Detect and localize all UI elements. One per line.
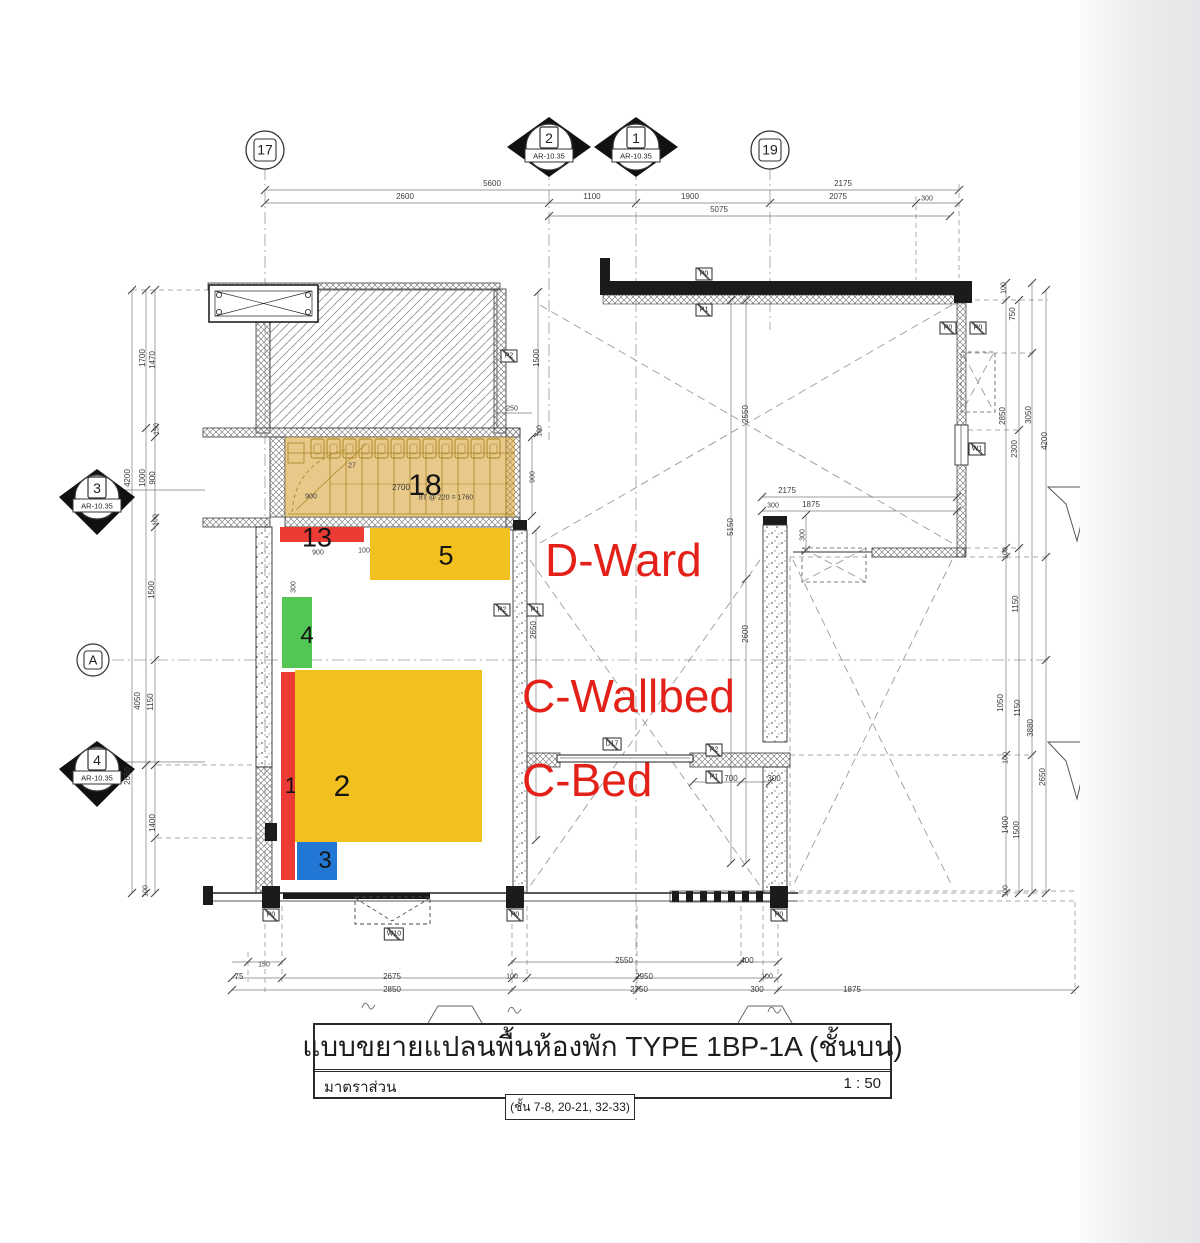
dimension-label: 1875 xyxy=(802,501,820,509)
section-marker-label: 2 xyxy=(545,130,553,146)
furniture-number-label: 3 xyxy=(318,849,331,873)
dimension-label: 900 xyxy=(530,471,537,483)
element-tag-P2: P2 xyxy=(706,744,723,757)
dimension-label: 100 xyxy=(1003,547,1010,559)
dimension-label: 100 xyxy=(143,885,150,897)
floor-plan-drawing: 17 19 A 2 AR-10.35 1 AR-10.35 xyxy=(0,0,1200,1243)
grid-bubble-label: A xyxy=(89,653,98,668)
dimension-label: 8T @ 220 = 1760 xyxy=(419,495,473,502)
dimension-label: 1000 xyxy=(139,469,147,487)
dimension-label: 700 xyxy=(724,775,737,783)
element-tag-D17: D17 xyxy=(603,738,622,751)
fold-marks xyxy=(362,1003,792,1023)
dimension-label: 1700 xyxy=(139,349,147,367)
floors-note: (ชั้น 7-8, 20-21, 32-33) xyxy=(505,1094,635,1120)
furniture-number-label: 5 xyxy=(438,543,453,570)
dimension-label: 150 xyxy=(258,962,270,969)
dimension-label: 100 xyxy=(1003,885,1010,897)
dimension-label: 1500 xyxy=(533,349,541,367)
dimension-label: 2075 xyxy=(829,193,847,201)
annotation-c-bed: C-Bed xyxy=(522,756,652,804)
furniture-overlay-18 xyxy=(285,437,515,517)
dimension-label: 150 xyxy=(154,423,161,435)
grid-bubble-17: 17 xyxy=(246,131,284,169)
furniture-number-label: 2 xyxy=(334,772,351,802)
dimension-label: 2850 xyxy=(999,407,1007,425)
dimension-label: 1500 xyxy=(1013,821,1021,839)
dimension-label: 100 xyxy=(358,548,370,555)
dimension-label: 300 xyxy=(767,775,780,783)
dimension-label: 1400 xyxy=(149,814,157,832)
dimension-label: 100 xyxy=(761,974,773,981)
dimension-label: 1100 xyxy=(583,193,600,201)
dimension-label: 2600 xyxy=(396,193,414,201)
dimension-label: 4050 xyxy=(134,692,142,710)
element-tag-P0: P0 xyxy=(696,268,713,281)
dimension-label: 1875 xyxy=(843,986,861,994)
dimension-label: 2600 xyxy=(742,625,750,643)
section-marker-label: 3 xyxy=(93,480,101,496)
dimension-label: 300 xyxy=(800,529,807,541)
element-tag-P2: P2 xyxy=(501,350,518,363)
dimension-label: 3050 xyxy=(1025,406,1033,424)
element-tag-P0: P0 xyxy=(940,322,957,335)
drawing-title: แบบขยายแปลนพื้นห้องพัก TYPE 1BP-1A (ชั้น… xyxy=(315,1025,890,1070)
dimension-label: 100 xyxy=(1001,282,1008,294)
dimension-label: 3880 xyxy=(1027,719,1035,737)
dimension-label: 750 xyxy=(1009,307,1017,320)
dimension-label: 2175 xyxy=(778,487,796,495)
dimension-label: 100 xyxy=(153,514,160,526)
dimension-label: 4200 xyxy=(1041,432,1049,450)
dimension-label: 27 xyxy=(348,463,356,470)
dimension-label: 1470 xyxy=(149,351,157,369)
furniture-number-label: 4 xyxy=(300,624,313,648)
furniture-overlay-2 xyxy=(295,670,482,842)
section-ref-label: AR-10.35 xyxy=(81,502,113,511)
dimension-label: 2700 xyxy=(392,484,410,492)
element-tag-P0: P0 xyxy=(507,909,524,922)
section-ref-label: AR-10.35 xyxy=(533,152,565,161)
element-tag-W1: W1 xyxy=(969,443,986,456)
floor-plan-page: 17 19 A 2 AR-10.35 1 AR-10.35 xyxy=(0,0,1200,1243)
dimension-label: 5150 xyxy=(727,518,735,536)
dimension-label: 300 xyxy=(767,503,779,510)
dimension-label: 2850 xyxy=(383,986,401,994)
grid-bubble-19: 19 xyxy=(751,131,789,169)
dimension-label: 1150 xyxy=(147,693,155,710)
dimension-label: 2650 xyxy=(1039,768,1047,786)
dimension-label: 1050 xyxy=(997,694,1005,712)
annotation-c-wallbed: C-Wallbed xyxy=(522,672,735,720)
dimension-label: 250 xyxy=(506,406,518,413)
section-ref-label: AR-10.35 xyxy=(620,152,652,161)
element-tag-P0: P0 xyxy=(263,909,280,922)
dimension-label: 300 xyxy=(291,581,298,593)
section-marker-2: 2 AR-10.35 xyxy=(507,117,591,177)
section-marker-label: 4 xyxy=(93,752,101,768)
scale-label: มาตราส่วน xyxy=(324,1075,396,1099)
section-marker-1: 1 AR-10.35 xyxy=(594,117,678,177)
section-ref-label: AR-10.35 xyxy=(81,774,113,783)
dimension-label: 100 xyxy=(537,425,544,437)
title-block: แบบขยายแปลนพื้นห้องพัก TYPE 1BP-1A (ชั้น… xyxy=(313,1023,892,1099)
dimension-label: 400 xyxy=(740,957,753,965)
dimension-label: 1150 xyxy=(1012,595,1020,612)
scale-value: 1 : 50 xyxy=(843,1075,881,1099)
dimension-label: 75 xyxy=(235,973,244,981)
grid-bubble-label: 17 xyxy=(257,142,273,158)
dimension-label: 5075 xyxy=(710,206,728,214)
element-tag-P0: P0 xyxy=(970,322,987,335)
dimension-label: 2550 xyxy=(615,957,633,965)
dimension-label: 900 xyxy=(305,494,317,501)
dimension-label: 2300 xyxy=(1011,440,1019,458)
dimension-label: 1900 xyxy=(681,193,699,201)
dimension-label: 900 xyxy=(312,550,324,557)
dimension-label: 1500 xyxy=(148,581,156,599)
dimension-label: 2175 xyxy=(834,180,852,188)
dimension-label: 2550 xyxy=(742,405,750,423)
grid-bubble-A: A xyxy=(77,644,109,676)
element-tag-P1: P1 xyxy=(706,771,723,784)
dimension-label: 300 xyxy=(750,986,763,994)
dimension-label: 300 xyxy=(921,196,933,203)
dimension-label: 2950 xyxy=(635,973,653,981)
element-tag-W10: W10 xyxy=(384,928,404,941)
dimension-label: 2675 xyxy=(383,973,401,981)
dimension-label: 900 xyxy=(149,471,157,484)
dimension-label: 5600 xyxy=(483,180,501,188)
annotation-d-ward: D-Ward xyxy=(545,536,702,584)
dimension-label: 100 xyxy=(506,974,518,981)
dimension-label: 1400 xyxy=(1002,816,1010,834)
furniture-number-label: 13 xyxy=(302,525,332,552)
grid-bubble-label: 19 xyxy=(762,142,778,158)
dimension-label: 2750 xyxy=(630,986,648,994)
photo-edge-shadow xyxy=(1080,0,1200,1243)
dimension-label: 2650 xyxy=(530,621,538,639)
dimension-label: 1150 xyxy=(1014,699,1022,716)
element-tag-P1: P1 xyxy=(527,604,544,617)
dimension-label: 2650 xyxy=(124,767,132,785)
section-marker-label: 1 xyxy=(632,130,640,146)
element-tag-P1: P1 xyxy=(696,304,713,317)
dimension-label: 4200 xyxy=(124,469,132,487)
element-tag-P2: P2 xyxy=(494,604,511,617)
dimension-label: 100 xyxy=(1003,752,1010,764)
element-tag-P0: P0 xyxy=(771,909,788,922)
